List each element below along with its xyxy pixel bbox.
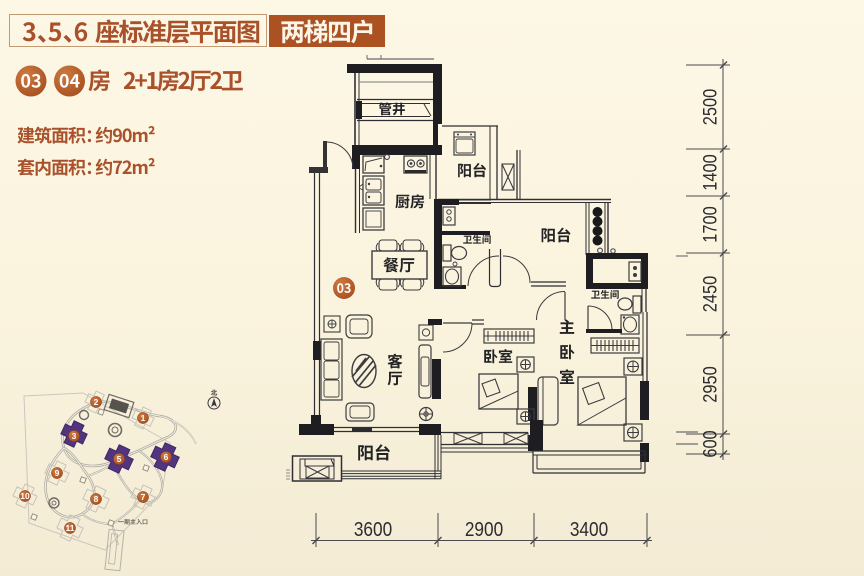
svg-text:1400: 1400	[699, 154, 721, 190]
svg-text:3: 3	[72, 431, 77, 441]
svg-text:8: 8	[94, 494, 99, 504]
svg-text:10: 10	[20, 491, 30, 501]
svg-text:11: 11	[66, 523, 75, 533]
svg-text:5: 5	[117, 454, 122, 464]
svg-text:7: 7	[141, 492, 146, 502]
svg-text:2450: 2450	[699, 276, 721, 312]
svg-text:9: 9	[55, 468, 60, 478]
svg-text:600: 600	[699, 430, 721, 457]
svg-text:3400: 3400	[570, 519, 608, 542]
svg-text:1: 1	[141, 413, 146, 423]
svg-text:2900: 2900	[465, 519, 503, 542]
svg-text:2: 2	[94, 397, 99, 407]
svg-text:6: 6	[164, 452, 169, 462]
svg-text:2950: 2950	[699, 366, 721, 402]
svg-text:1700: 1700	[699, 206, 721, 242]
svg-text:2500: 2500	[699, 89, 721, 125]
svg-text:3600: 3600	[354, 519, 392, 542]
